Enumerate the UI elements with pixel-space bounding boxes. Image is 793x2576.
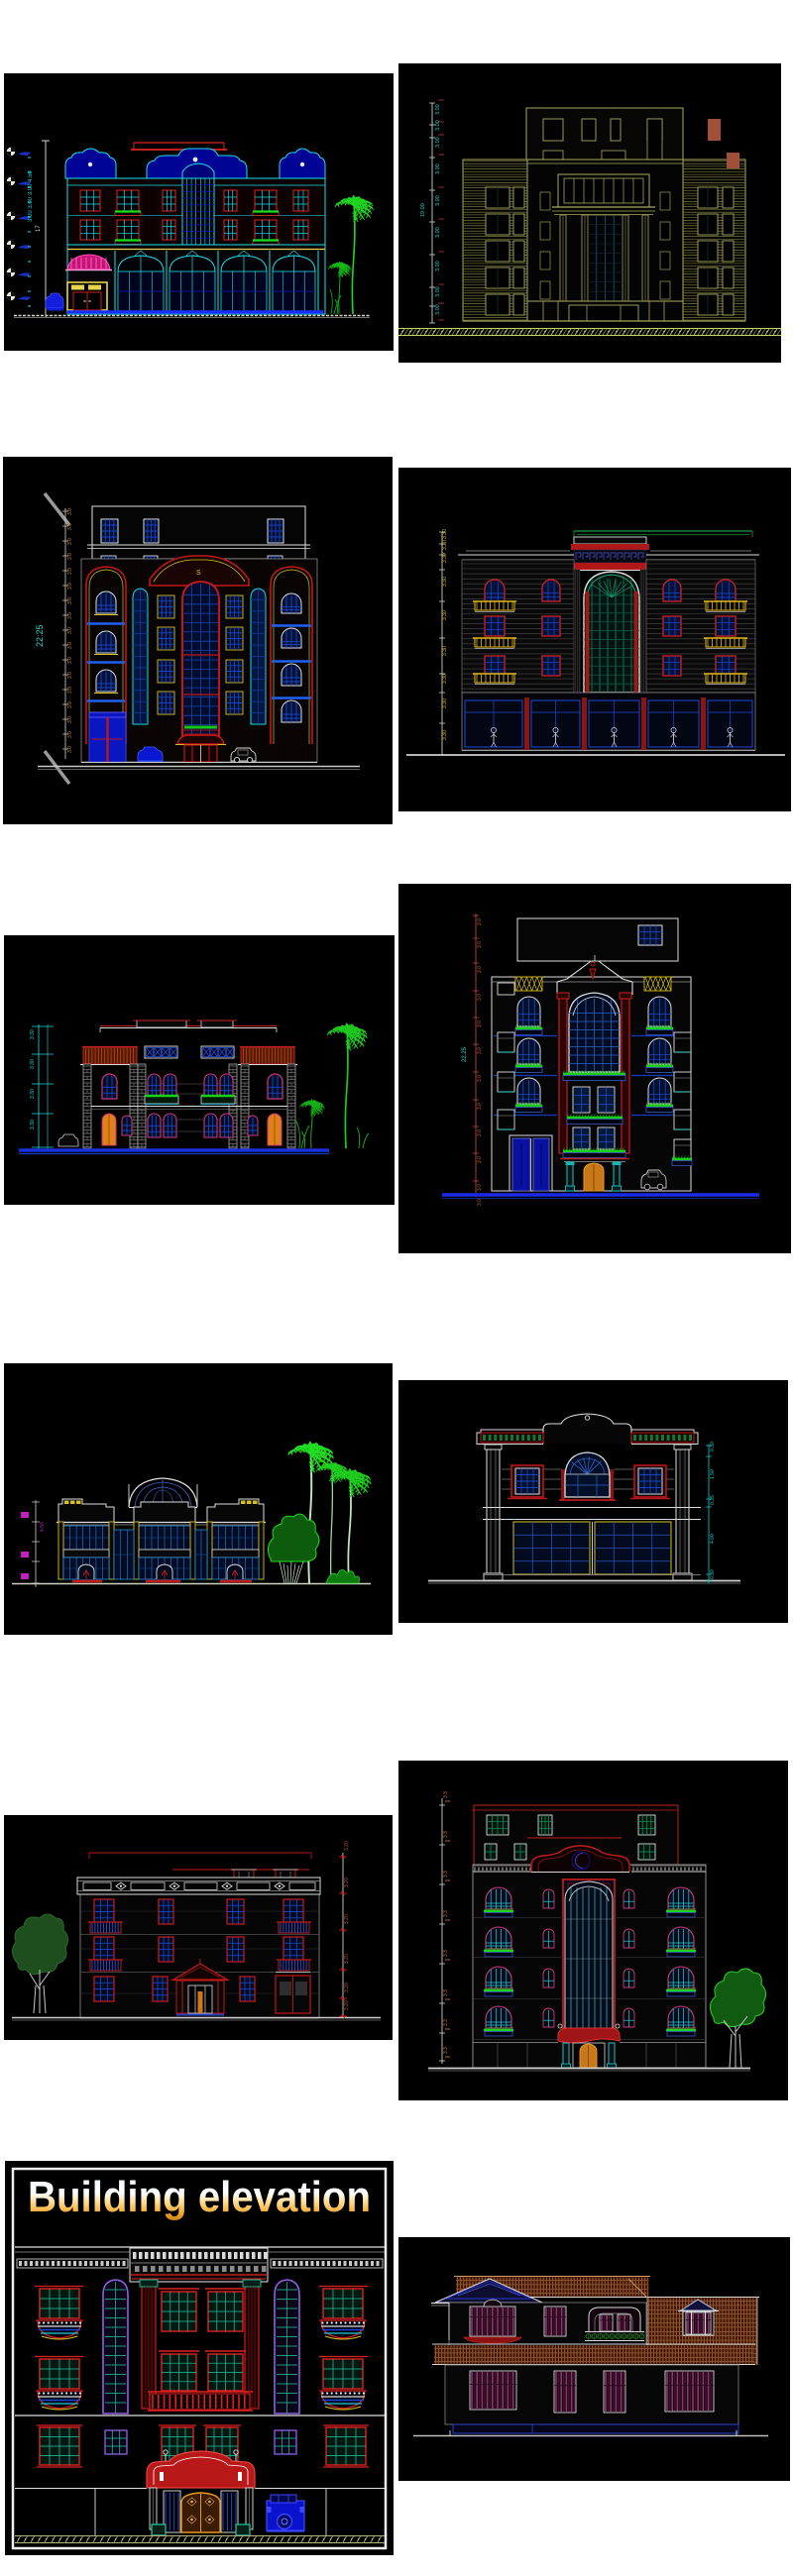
svg-text:3.0: 3.0 xyxy=(67,701,73,708)
svg-text:3.0: 3.0 xyxy=(477,1184,483,1191)
svg-text:22.25: 22.25 xyxy=(462,1046,468,1062)
svg-text:3.0: 3.0 xyxy=(477,1156,483,1163)
svg-text:3.0: 3.0 xyxy=(67,553,73,560)
svg-text:3.0: 3.0 xyxy=(477,1103,483,1110)
svg-text:3.3: 3.3 xyxy=(443,1910,449,1917)
svg-text:3.30: 3.30 xyxy=(30,1029,36,1039)
svg-text:3.0: 3.0 xyxy=(477,966,483,973)
svg-text:3.20: 3.20 xyxy=(344,1841,350,1851)
svg-text:3.3: 3.3 xyxy=(443,2019,449,2026)
svg-text:3.30: 3.30 xyxy=(442,540,448,550)
svg-text:3.00: 3.00 xyxy=(435,163,441,174)
svg-text:3.0: 3.0 xyxy=(67,583,73,590)
svg-text:3.00: 3.00 xyxy=(435,104,441,115)
svg-text:3.3: 3.3 xyxy=(443,2047,449,2054)
svg-text:S: S xyxy=(196,570,201,577)
svg-text:3.0: 3.0 xyxy=(67,731,73,738)
svg-text:3.0: 3.0 xyxy=(477,918,483,925)
svg-text:0.30: 0.30 xyxy=(710,1442,716,1451)
svg-text:3.30: 3.30 xyxy=(442,529,448,539)
svg-text:3.0: 3.0 xyxy=(67,657,73,664)
svg-text:3.30: 3.30 xyxy=(442,674,448,684)
svg-text:3.00: 3.00 xyxy=(435,120,441,131)
svg-text:4.50: 4.50 xyxy=(40,1522,46,1532)
svg-text:Building elevation: Building elevation xyxy=(28,2173,371,2221)
svg-text:3.3: 3.3 xyxy=(443,1950,449,1957)
svg-text:3.3: 3.3 xyxy=(443,1989,449,1996)
svg-text:3.00: 3.00 xyxy=(435,261,441,271)
svg-text:3.3: 3.3 xyxy=(443,1871,449,1878)
svg-text:3.0: 3.0 xyxy=(67,538,73,545)
svg-text:3.30: 3.30 xyxy=(442,646,448,656)
svg-text:3.30: 3.30 xyxy=(30,1120,36,1129)
svg-text:22:25: 22:25 xyxy=(35,624,45,647)
svg-text:3.20: 3.20 xyxy=(344,1914,350,1924)
svg-text:3.30: 3.30 xyxy=(442,698,448,708)
svg-text:3.0: 3.0 xyxy=(67,597,73,604)
svg-text:3.00: 3.00 xyxy=(435,227,441,238)
svg-text:3.00 3.00 3.00 4.50: 3.00 3.00 3.00 4.50 xyxy=(28,170,34,222)
svg-text:0.35: 0.35 xyxy=(710,1495,716,1505)
svg-text:3.30: 3.30 xyxy=(30,1059,36,1069)
svg-text:0.30: 0.30 xyxy=(710,1569,716,1579)
svg-text:3.0: 3.0 xyxy=(67,716,73,723)
svg-text:3.3: 3.3 xyxy=(443,1831,449,1838)
svg-text:3.0: 3.0 xyxy=(477,994,483,1001)
svg-text:1.50: 1.50 xyxy=(710,1469,716,1479)
svg-text:3.0: 3.0 xyxy=(477,1020,483,1027)
svg-text:4.00: 4.00 xyxy=(710,1534,716,1544)
svg-text:3.00: 3.00 xyxy=(435,286,441,297)
svg-text:3.20: 3.20 xyxy=(344,1983,350,1992)
svg-text:3.30: 3.30 xyxy=(442,610,448,620)
svg-text:3.0: 3.0 xyxy=(477,1199,483,1206)
svg-text:3.0: 3.0 xyxy=(67,612,73,619)
svg-text:3.00: 3.00 xyxy=(435,304,441,315)
svg-text:3.0: 3.0 xyxy=(477,941,483,948)
svg-text:3.0: 3.0 xyxy=(67,627,73,634)
svg-text:3.0: 3.0 xyxy=(67,523,73,530)
svg-text:3.0: 3.0 xyxy=(477,1129,483,1136)
svg-text:3.0: 3.0 xyxy=(67,508,73,515)
svg-text:19.00: 19.00 xyxy=(420,203,426,217)
svg-text:3.0: 3.0 xyxy=(477,1075,483,1082)
svg-text:3.30: 3.30 xyxy=(442,730,448,740)
svg-text:3.0: 3.0 xyxy=(67,672,73,679)
svg-text:3.30: 3.30 xyxy=(442,553,448,563)
svg-text:3.0: 3.0 xyxy=(67,642,73,649)
svg-text:3.00: 3.00 xyxy=(435,137,441,148)
svg-text:3.0: 3.0 xyxy=(477,1047,483,1054)
svg-text:3.30: 3.30 xyxy=(30,1089,36,1099)
svg-text:3.20: 3.20 xyxy=(344,1878,350,1887)
svg-text:3.20: 3.20 xyxy=(344,2000,350,2010)
svg-text:3.3: 3.3 xyxy=(443,1791,449,1798)
svg-text:3.0: 3.0 xyxy=(67,568,73,575)
svg-text:3.20: 3.20 xyxy=(344,1954,350,1964)
svg-text:17: 17 xyxy=(36,225,42,232)
svg-text:3.00: 3.00 xyxy=(435,195,441,206)
svg-text:3.0: 3.0 xyxy=(67,687,73,694)
svg-text:3.0: 3.0 xyxy=(67,746,73,753)
svg-text:3.30: 3.30 xyxy=(442,577,448,587)
